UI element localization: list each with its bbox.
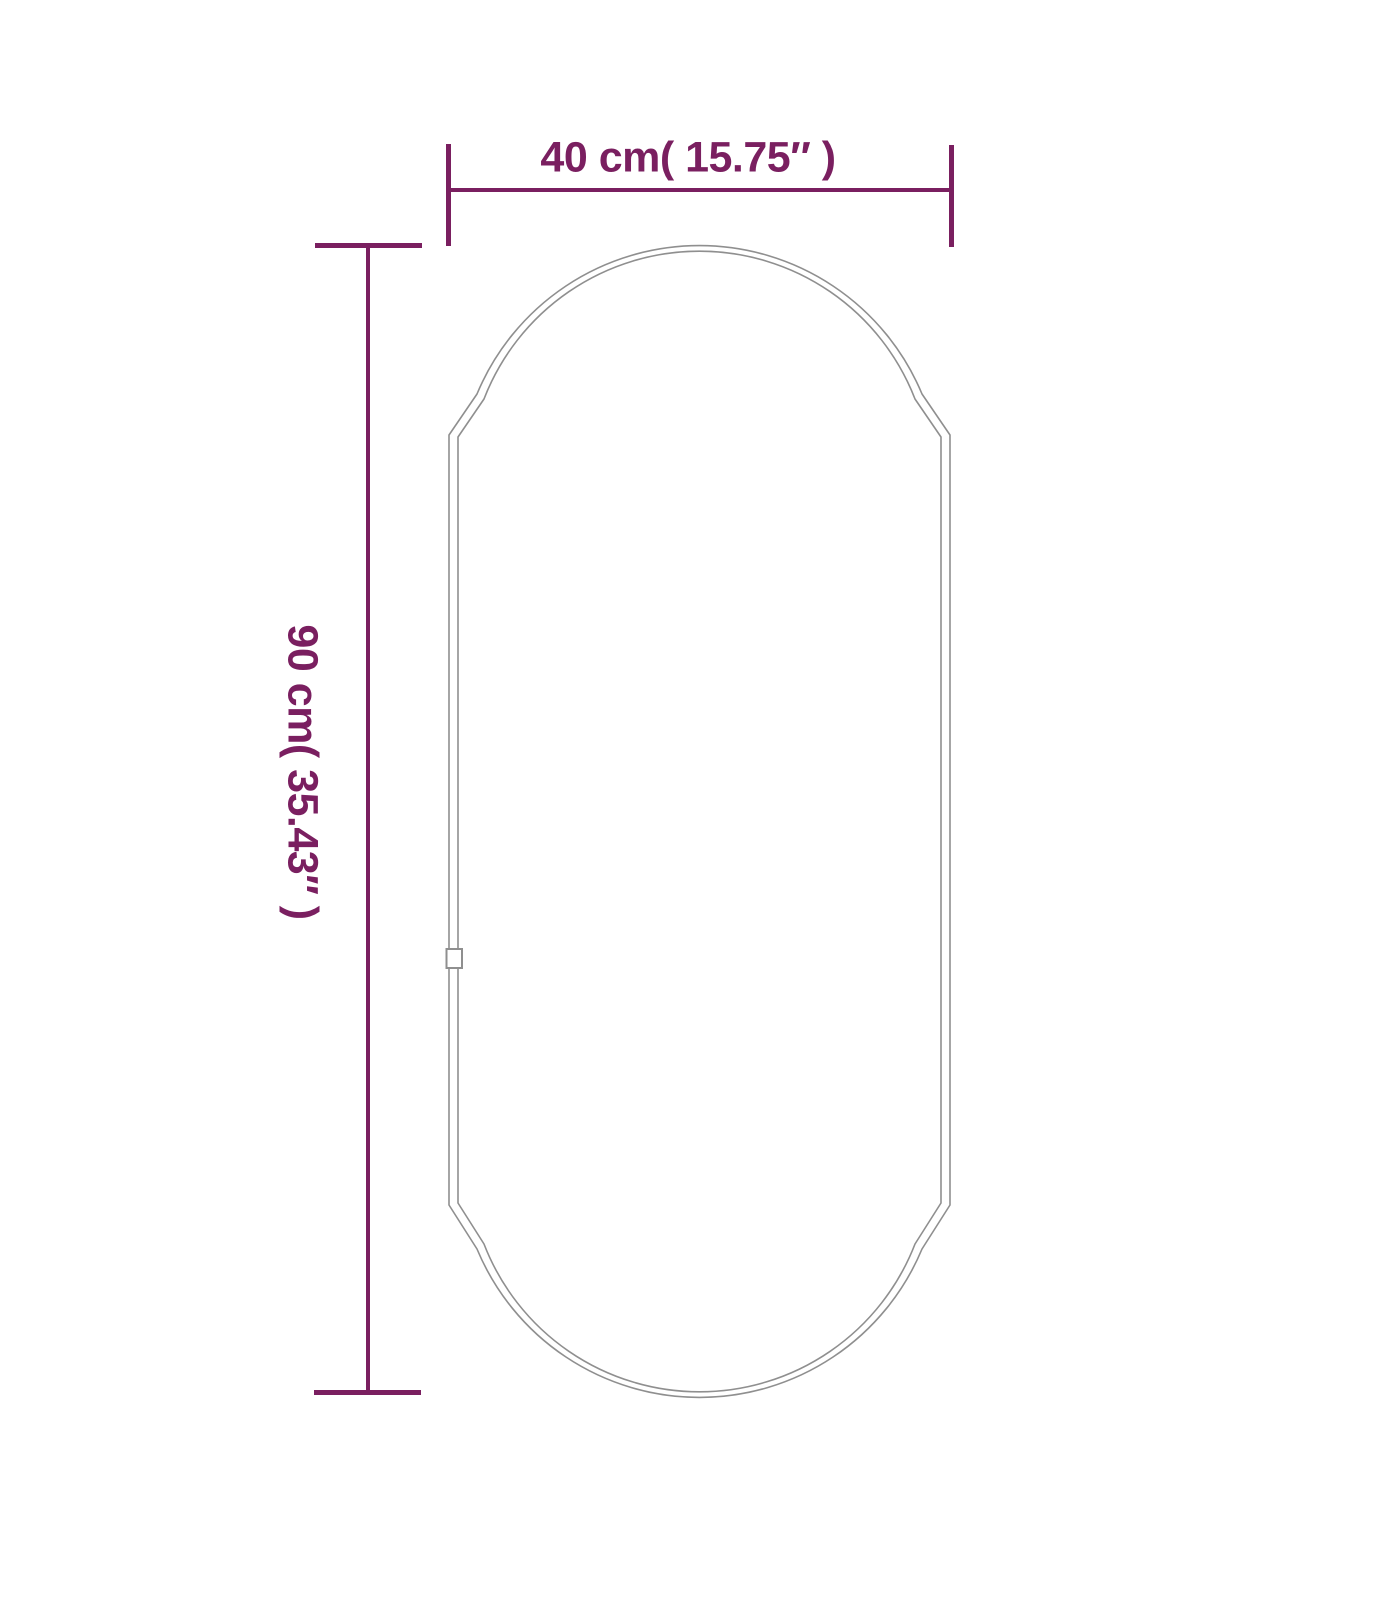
- height-dimension-line: [366, 245, 370, 1393]
- mount-clip-notch: [447, 949, 463, 968]
- height-dimension-label: 90 cm( 35.43″ ): [278, 624, 327, 919]
- height-dimension-top-tick: [315, 243, 422, 248]
- width-dimension-right-tick: [949, 145, 954, 247]
- width-dimension-label: 40 cm( 15.75″ ): [540, 134, 835, 183]
- dimension-diagram: 40 cm( 15.75″ ) 90 cm( 35.43″ ): [0, 0, 1400, 1600]
- mirror-outer-outline: [449, 246, 950, 1398]
- width-dimension-line: [448, 188, 951, 192]
- mirror-inner-outline: [458, 251, 941, 1392]
- mirror-outline-drawing: [0, 0, 1400, 1600]
- height-dimension-bottom-tick: [314, 1390, 421, 1395]
- width-dimension-left-tick: [446, 144, 451, 246]
